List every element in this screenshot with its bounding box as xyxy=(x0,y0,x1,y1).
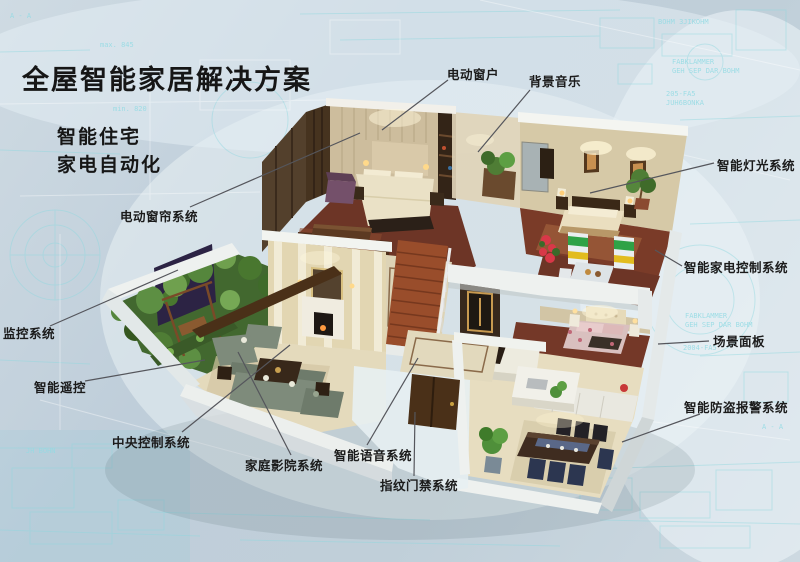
leader-smart-appliance-control xyxy=(655,250,682,266)
subtitle-appliance-automation: 家电自动化 xyxy=(57,150,162,177)
leader-burglar-alarm xyxy=(622,414,700,442)
callout-burglar-alarm: 智能防盗报警系统 xyxy=(684,397,788,416)
leader-monitoring xyxy=(50,270,178,326)
callout-electric-curtain: 电动窗帘系统 xyxy=(120,206,198,225)
leader-scene-panel xyxy=(658,341,709,344)
leader-smart-remote xyxy=(85,360,205,381)
callout-smart-remote: 智能遥控 xyxy=(34,377,86,396)
leader-background-music xyxy=(478,90,530,152)
callout-background-music: 背景音乐 xyxy=(529,71,581,90)
leader-electric-window xyxy=(382,80,448,130)
callout-central-control: 中央控制系统 xyxy=(112,432,190,451)
callout-electric-window: 电动窗户 xyxy=(447,64,499,83)
leader-fingerprint-access xyxy=(414,412,415,476)
callout-smart-appliance-control: 智能家电控制系统 xyxy=(684,257,788,276)
callout-fingerprint-access: 指纹门禁系统 xyxy=(380,475,458,494)
leader-home-theater xyxy=(238,352,291,455)
callout-smart-lighting: 智能灯光系统 xyxy=(717,155,795,174)
callout-scene-panel: 场景面板 xyxy=(713,331,765,350)
callout-home-theater: 家庭影院系统 xyxy=(245,455,323,474)
page-title: 全屋智能家居解决方案 xyxy=(22,58,312,97)
callout-smart-voice: 智能语音系统 xyxy=(334,445,412,464)
leader-electric-curtain xyxy=(190,133,360,207)
subtitle-smart-residence: 智能住宅 xyxy=(57,122,141,149)
leader-smart-voice xyxy=(367,358,418,445)
leader-smart-lighting xyxy=(590,163,714,193)
callout-monitoring: 监控系统 xyxy=(3,323,55,342)
leader-central-control xyxy=(182,345,290,432)
